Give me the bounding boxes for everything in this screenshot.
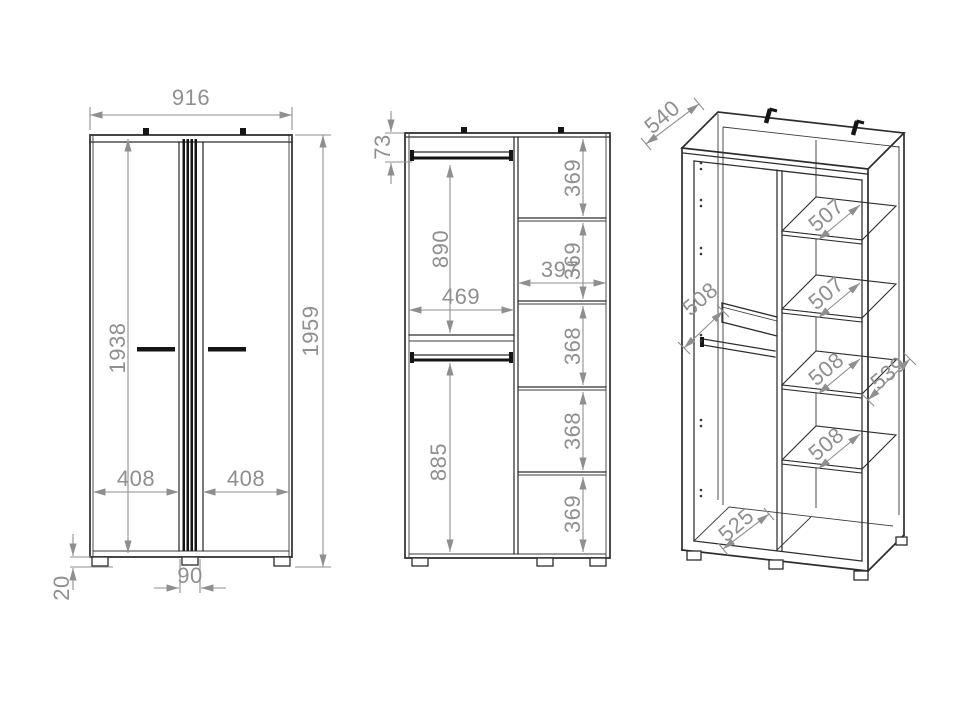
perspective-view: 540 508 507 507 508 508 539 — [639, 95, 916, 580]
dim-left-section-width: 469 — [409, 284, 514, 310]
front-view: 916 1959 1938 408 408 90 — [49, 85, 331, 601]
dim-label: 90 — [177, 563, 202, 588]
dim-foot-height: 20 — [49, 534, 113, 601]
foot — [412, 558, 428, 566]
dim-label: 885 — [426, 443, 451, 481]
foot — [590, 558, 606, 566]
mounting-bracket — [143, 128, 149, 135]
dim-bottom-gap: 90 — [154, 559, 226, 593]
dim-label: 73 — [370, 134, 395, 159]
door-handle — [208, 347, 246, 352]
foot — [687, 551, 701, 560]
dim-label: 368 — [560, 327, 585, 365]
hanging-rail-3d — [700, 337, 775, 357]
dim-label: 916 — [172, 85, 210, 110]
dim-label: 369 — [560, 242, 585, 280]
dim-label: 369 — [560, 159, 585, 197]
dim-label: 540 — [639, 95, 684, 139]
foot — [854, 571, 868, 580]
hanging-rail-top — [410, 150, 513, 161]
dim-overall-height: 1959 — [295, 135, 331, 567]
mounting-bracket — [240, 128, 246, 135]
mounting-bracket — [558, 127, 564, 133]
dim-label: 1959 — [298, 306, 323, 357]
dim-label: 368 — [560, 412, 585, 450]
drawing-svg: 916 1959 1938 408 408 90 — [0, 0, 962, 721]
dim-label: 20 — [49, 575, 74, 600]
hanging-rail-middle — [410, 352, 513, 363]
dim-label: 469 — [442, 284, 480, 309]
dim-overall-width: 916 — [90, 85, 292, 130]
dim-top-depth: 540 — [639, 95, 704, 150]
foot — [769, 560, 783, 569]
foot — [92, 557, 108, 566]
mounting-bracket — [766, 109, 777, 123]
foot — [274, 557, 290, 566]
dim-lower-section-height: 885 — [426, 363, 451, 552]
dim-left-door-width: 408 — [93, 466, 179, 492]
door-gap-hinge-strip — [183, 139, 198, 551]
door-handle — [137, 347, 175, 352]
wardrobe-technical-drawing: 916 1959 1938 408 408 90 — [0, 0, 962, 721]
foot — [896, 537, 907, 545]
dim-label: 508 — [677, 277, 722, 321]
dim-label: 408 — [227, 466, 265, 491]
back-panel-connector — [722, 303, 777, 336]
mounting-bracket — [461, 127, 467, 133]
dim-label: 1938 — [105, 323, 130, 374]
dim-label: 890 — [428, 230, 453, 268]
foot — [537, 558, 553, 566]
shelf-pin-holes — [700, 162, 703, 498]
dim-label: 408 — [117, 466, 155, 491]
dim-compartments: 369 369 368 368 369 — [560, 139, 585, 552]
dim-label: 369 — [560, 495, 585, 533]
internal-view: 73 890 885 469 397 369 369 368 368 — [370, 111, 610, 566]
dim-right-door-width: 408 — [203, 466, 289, 492]
